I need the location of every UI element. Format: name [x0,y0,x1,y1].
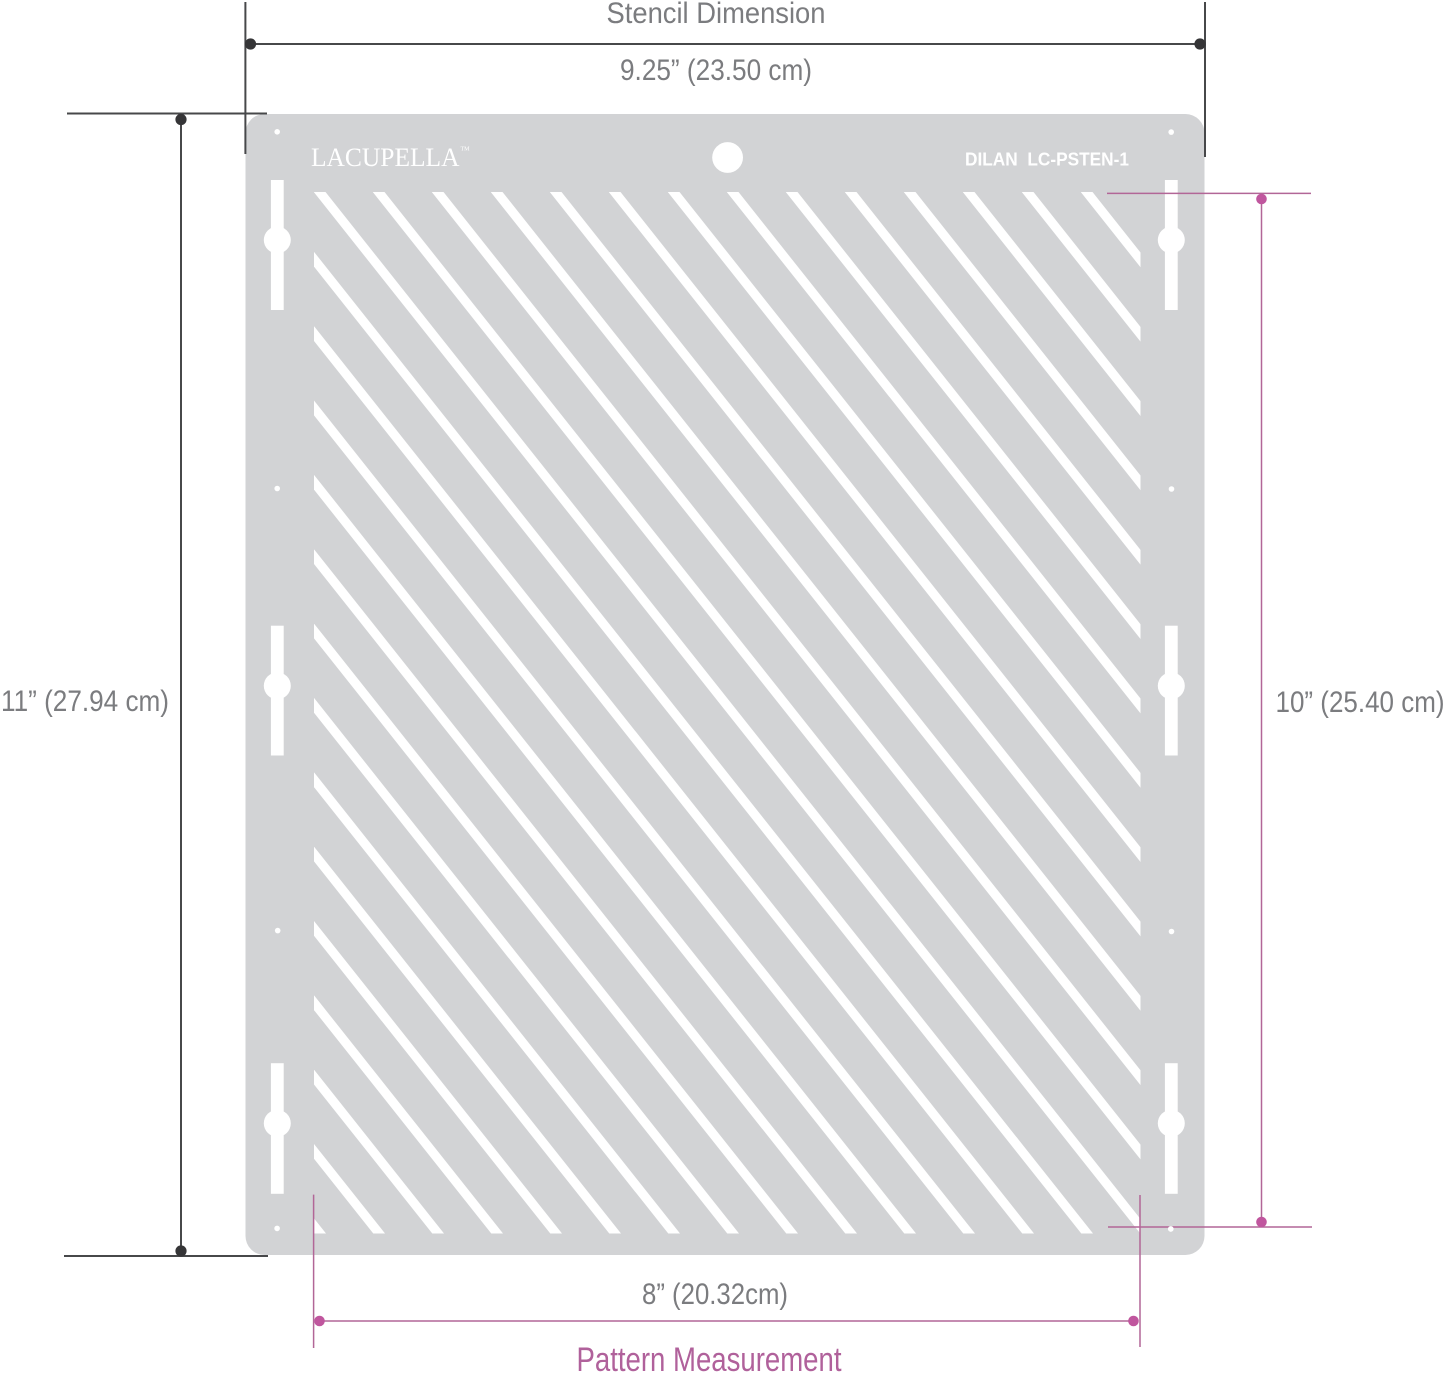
svg-text:9.25” (23.50 cm): 9.25” (23.50 cm) [620,54,812,87]
svg-text:LACUPELLA: LACUPELLA [311,142,460,172]
svg-text:11” (27.94 cm): 11” (27.94 cm) [1,685,169,718]
svg-text:TM: TM [461,147,471,153]
svg-text:Stencil Dimension: Stencil Dimension [607,0,826,30]
svg-text:DILAN LC-PSTEN-1: DILAN LC-PSTEN-1 [965,149,1129,170]
svg-text:Pattern Measurement: Pattern Measurement [577,1341,842,1373]
svg-text:10” (25.40 cm): 10” (25.40 cm) [1276,686,1445,719]
svg-text:8” (20.32cm): 8” (20.32cm) [642,1278,788,1311]
